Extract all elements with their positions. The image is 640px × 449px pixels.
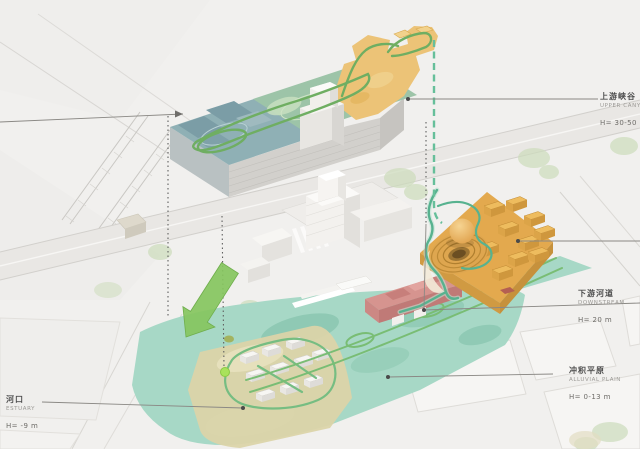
- site-diagram-svg: [0, 0, 640, 449]
- label-downstream-en: DOWNSTREAM: [578, 300, 625, 306]
- label-estuary-en: ESTUARY: [6, 406, 38, 412]
- label-upper-canyon-height: H= 30-50 m: [600, 119, 640, 127]
- label-alluvial-plain: 冲积平原 ALLUVIAL PLAIN H= 0-13 m: [569, 366, 621, 401]
- label-downstream-zh: 下游河道: [578, 289, 625, 298]
- label-upper-canyon-zh: 上游峡谷: [600, 92, 640, 101]
- node-dot-green: [221, 368, 230, 377]
- label-estuary: 河口 ESTUARY H= -9 m: [6, 395, 38, 430]
- small-green-blob: [224, 336, 234, 343]
- label-estuary-height: H= -9 m: [6, 422, 38, 430]
- label-alluvial-plain-height: H= 0-13 m: [569, 393, 621, 401]
- label-upper-canyon-en: UPPER CANYON: [600, 103, 640, 109]
- dome: [450, 219, 475, 244]
- label-downstream-height: H= 20 m: [578, 316, 625, 324]
- label-alluvial-plain-zh: 冲积平原: [569, 366, 621, 375]
- label-downstream: 下游河道 DOWNSTREAM H= 20 m: [578, 289, 625, 324]
- label-alluvial-plain-en: ALLUVIAL PLAIN: [569, 377, 621, 383]
- label-estuary-zh: 河口: [6, 395, 38, 404]
- site-diagram: 上游峡谷 UPPER CANYON H= 30-50 m 下游河道 DOWNST…: [0, 0, 640, 449]
- label-upper-canyon: 上游峡谷 UPPER CANYON H= 30-50 m: [600, 92, 640, 127]
